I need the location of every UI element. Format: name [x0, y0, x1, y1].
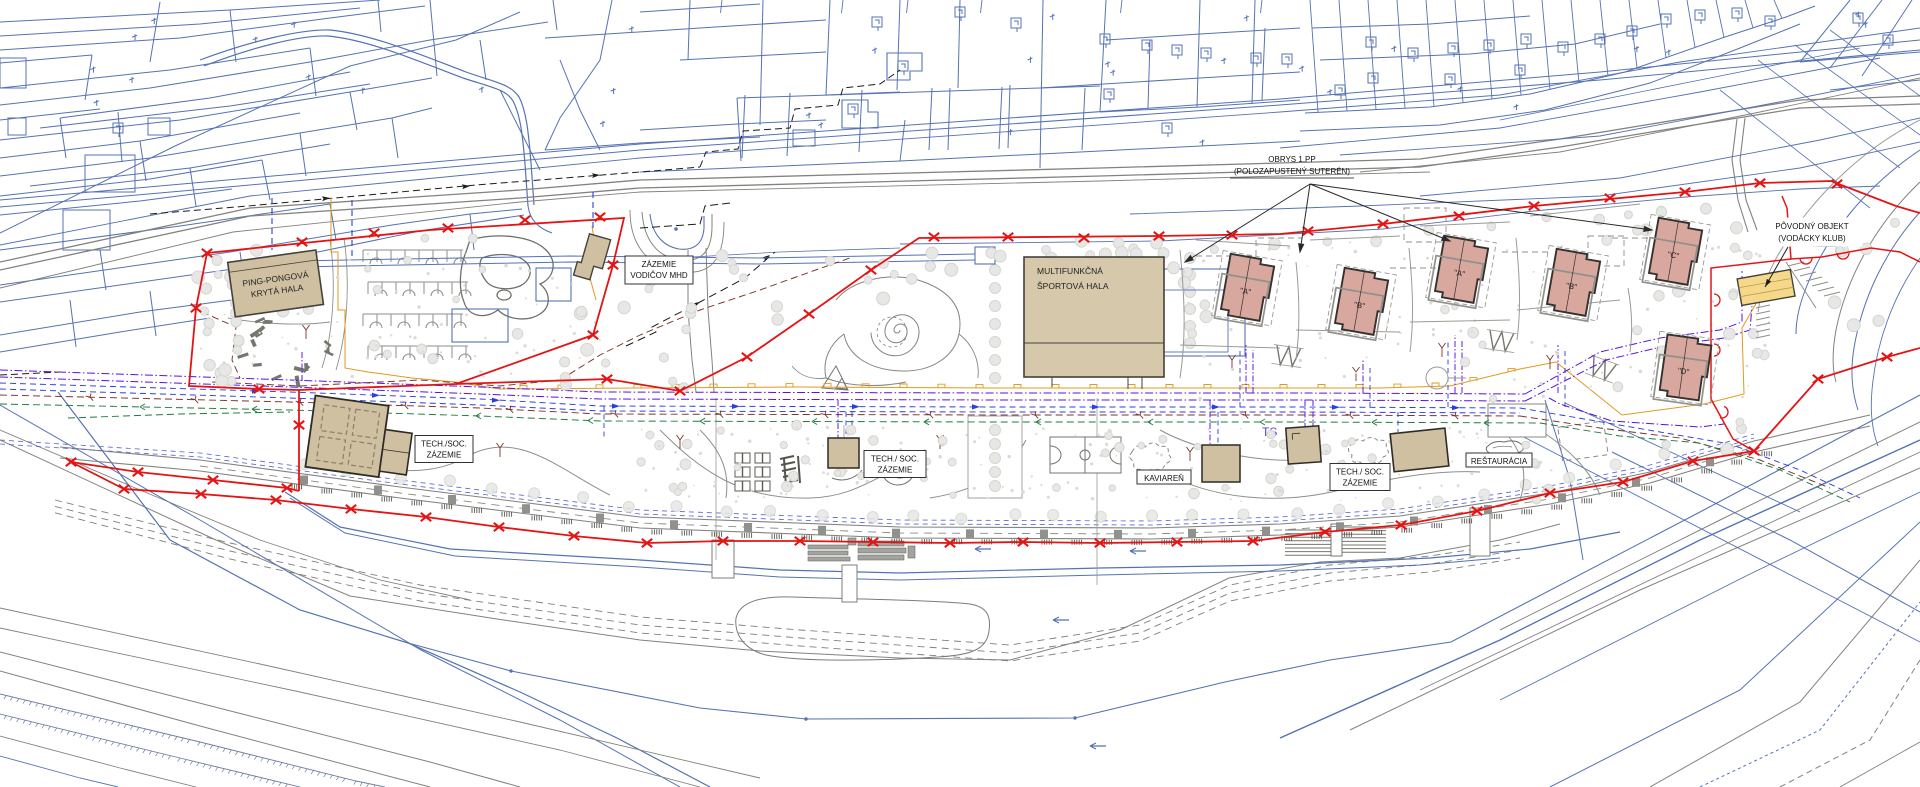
svg-text:VODIČOV MHD: VODIČOV MHD — [630, 271, 688, 280]
svg-text:ŠPORTOVÁ HALA: ŠPORTOVÁ HALA — [1037, 281, 1109, 291]
svg-text:KAVIAREŇ: KAVIAREŇ — [1144, 474, 1184, 483]
svg-text:TECH./SOC.: TECH./SOC. — [421, 440, 467, 449]
svg-text:ZÁZEMIE: ZÁZEMIE — [1343, 479, 1378, 488]
svg-text:MULTIFUNKČNÁ: MULTIFUNKČNÁ — [1037, 266, 1103, 276]
svg-text:ZÁZEMIE: ZÁZEMIE — [878, 466, 913, 475]
svg-text:TECH./ SOC.: TECH./ SOC. — [871, 455, 919, 464]
svg-text:"D": "D" — [1677, 366, 1690, 377]
svg-text:"B": "B" — [1353, 300, 1366, 311]
svg-text:"A": "A" — [1453, 268, 1466, 279]
svg-text:REŠTAURÁCIA: REŠTAURÁCIA — [1471, 457, 1528, 466]
svg-text:"A": "A" — [1239, 286, 1252, 297]
svg-text:TECH./ SOC.: TECH./ SOC. — [1336, 468, 1384, 477]
svg-text:PÔVODNÝ OBJEKT: PÔVODNÝ OBJEKT — [1775, 222, 1848, 231]
svg-text:OBRYS 1.PP: OBRYS 1.PP — [1268, 155, 1315, 164]
svg-text:ZÁZEMIE: ZÁZEMIE — [427, 451, 462, 460]
svg-text:ZÁZEMIE: ZÁZEMIE — [642, 260, 677, 269]
svg-text:(VODÁCKY KLUB): (VODÁCKY KLUB) — [1778, 234, 1846, 243]
svg-text:"B": "B" — [1565, 281, 1578, 292]
svg-text:(POLOZAPUSTENÝ SUTERÉN): (POLOZAPUSTENÝ SUTERÉN) — [1234, 167, 1350, 176]
